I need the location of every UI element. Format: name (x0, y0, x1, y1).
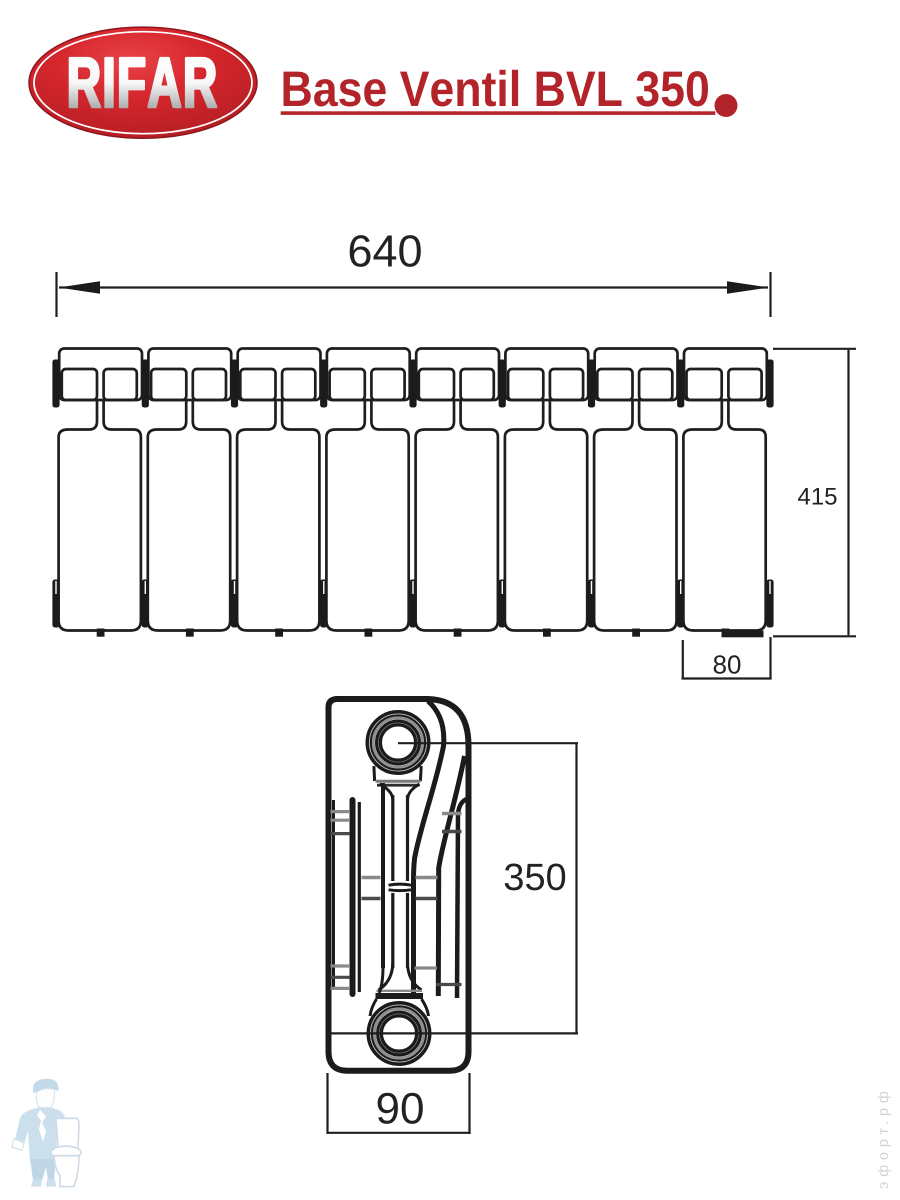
svg-text:эфорт.рф: эфорт.рф (876, 1086, 892, 1189)
